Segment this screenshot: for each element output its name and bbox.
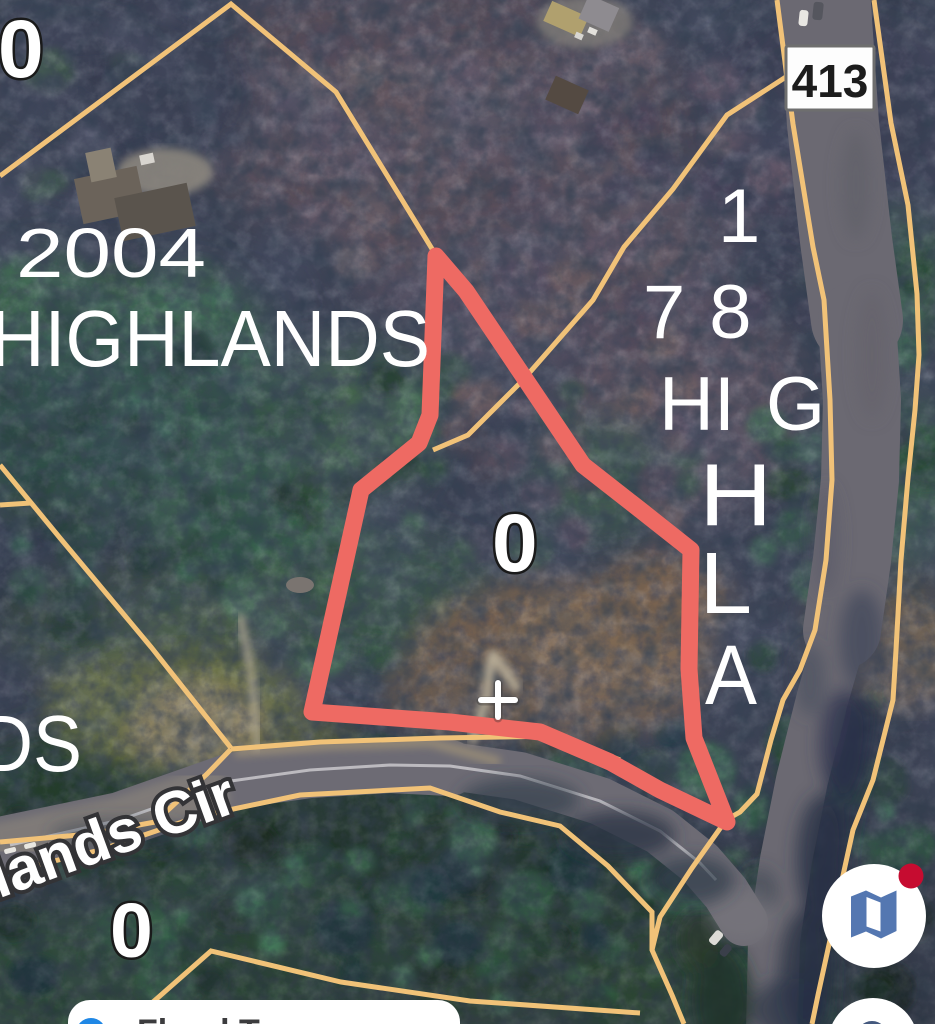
svg-text:A: A (705, 628, 757, 722)
svg-text:HI: HI (659, 362, 735, 447)
svg-text:HIGHLANDS: HIGHLANDS (0, 294, 430, 383)
svg-text:G: G (766, 362, 825, 447)
svg-text:L: L (699, 536, 752, 633)
svg-text:2004: 2004 (16, 214, 206, 292)
svg-text:78: 78 (643, 270, 776, 355)
svg-text:1: 1 (718, 174, 760, 259)
svg-text:H: H (699, 446, 772, 544)
svg-text:0: 0 (492, 498, 538, 589)
svg-text:0: 0 (110, 888, 153, 974)
svg-text:413: 413 (792, 55, 869, 107)
svg-text:0: 0 (0, 4, 44, 95)
svg-text:Flood Tr: Flood Tr (137, 1013, 271, 1024)
svg-text:DS: DS (0, 699, 82, 788)
